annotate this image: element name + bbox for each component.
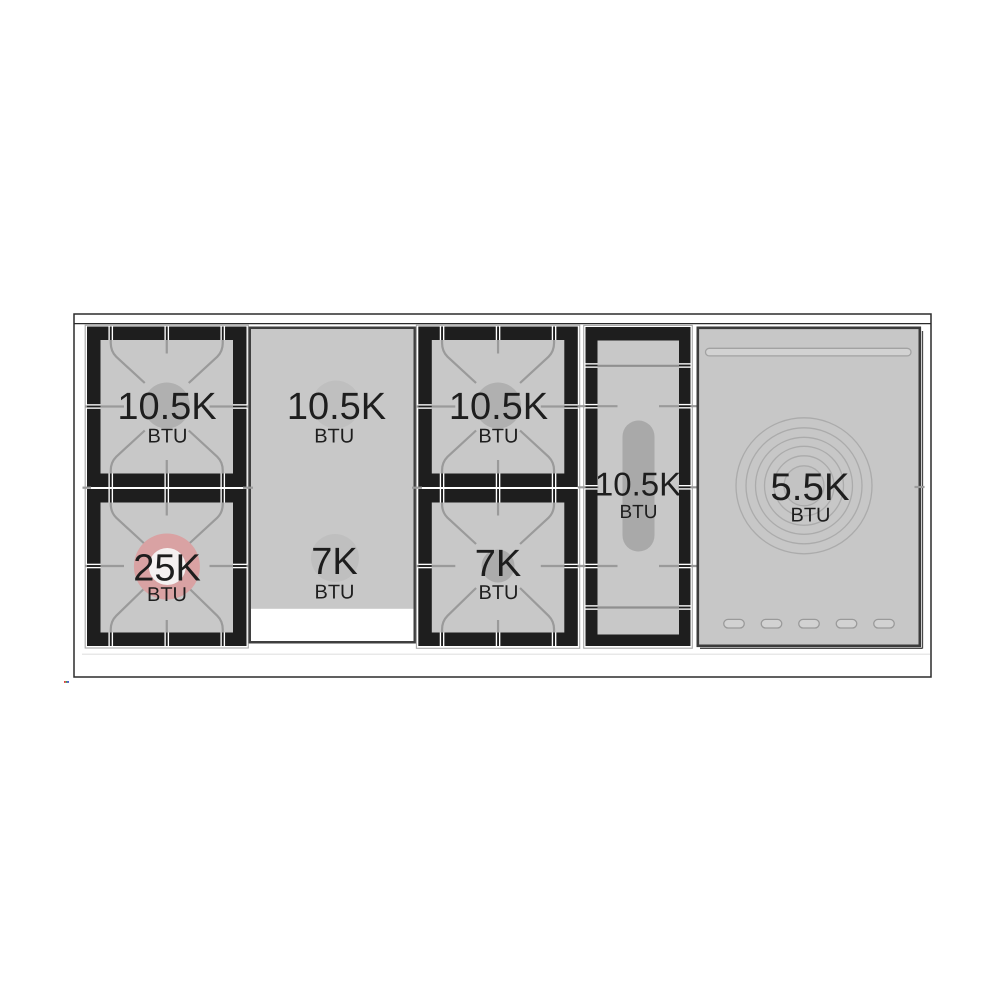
- svg-text:BTU: BTU: [314, 426, 354, 448]
- svg-text:7K: 7K: [311, 541, 357, 583]
- svg-text:10.5K: 10.5K: [117, 386, 216, 428]
- svg-text:BTU: BTU: [148, 426, 188, 448]
- svg-text:7K: 7K: [475, 543, 521, 585]
- svg-text:BTU: BTU: [147, 584, 187, 606]
- svg-text:10.5K: 10.5K: [449, 386, 548, 428]
- svg-text:BTU: BTU: [479, 582, 519, 604]
- svg-text:10.5K: 10.5K: [287, 386, 386, 428]
- svg-text:10.5K: 10.5K: [595, 466, 681, 503]
- svg-text:5.5K: 5.5K: [770, 466, 850, 509]
- svg-text:BTU: BTU: [791, 505, 831, 527]
- svg-text:BTU: BTU: [620, 502, 658, 523]
- svg-text:BTU: BTU: [478, 426, 518, 448]
- svg-text:BTU: BTU: [315, 582, 355, 604]
